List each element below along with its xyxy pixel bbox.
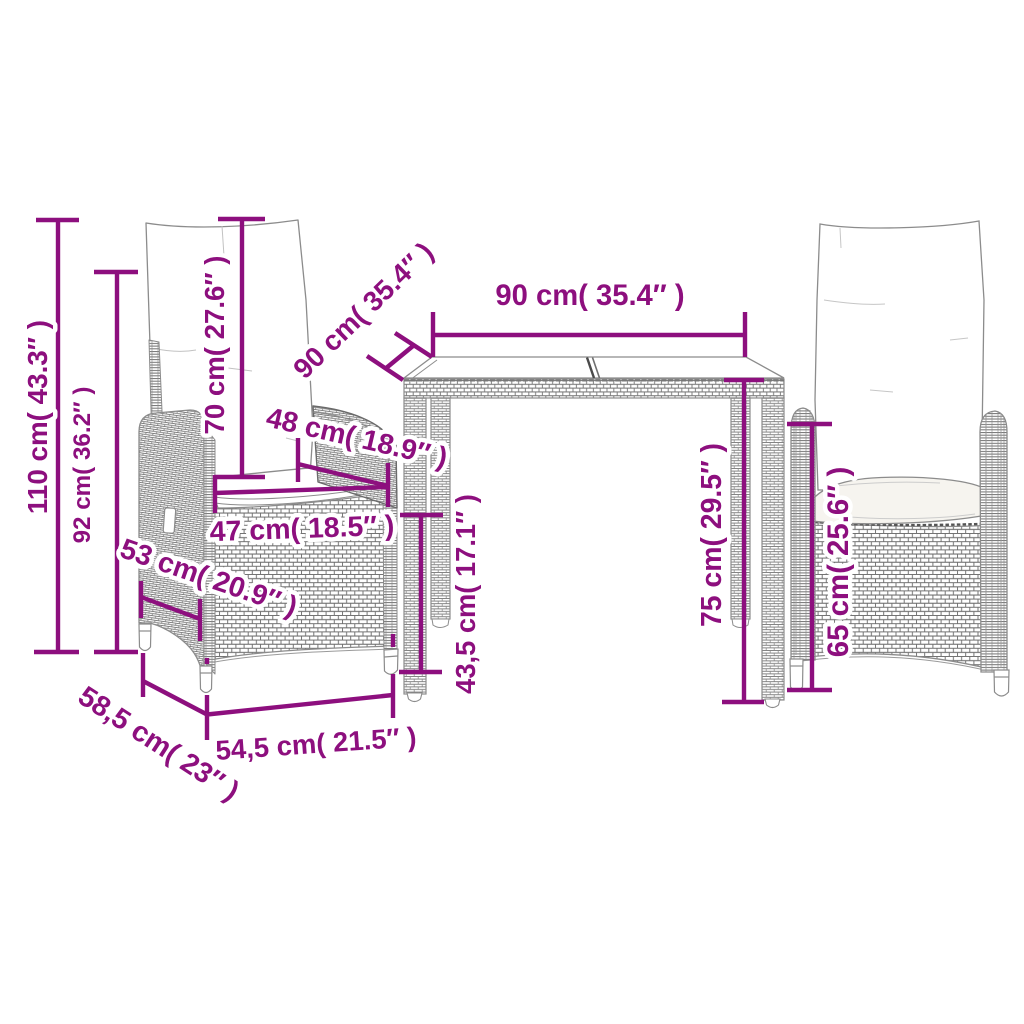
svg-text:70 cm( 27.6″ ): 70 cm( 27.6″ ) xyxy=(199,256,230,435)
svg-text:90 cm( 35.4″ ): 90 cm( 35.4″ ) xyxy=(495,280,684,312)
svg-text:65 cm( 25.6″ ): 65 cm( 25.6″ ) xyxy=(822,467,855,658)
svg-text:110 cm( 43.3″ ): 110 cm( 43.3″ ) xyxy=(22,320,53,514)
svg-text:75 cm( 29.5″ ): 75 cm( 29.5″ ) xyxy=(696,443,728,627)
svg-text:92 cm( 36.2″ ): 92 cm( 36.2″ ) xyxy=(69,387,96,544)
svg-text:47 cm( 18.5″ ): 47 cm( 18.5″ ) xyxy=(209,510,395,548)
svg-text:43,5 cm( 17.1″ ): 43,5 cm( 17.1″ ) xyxy=(450,494,481,694)
